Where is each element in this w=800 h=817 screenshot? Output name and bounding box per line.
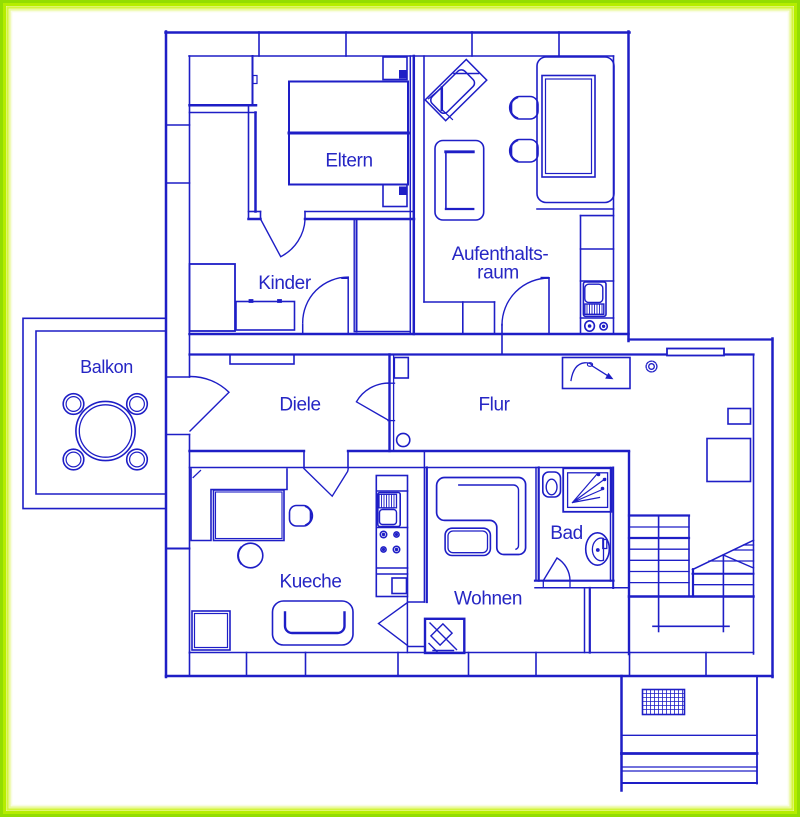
svg-text:Balkon: Balkon [80, 357, 133, 377]
svg-text:Kueche: Kueche [279, 572, 341, 593]
svg-text:Bad: Bad [550, 523, 583, 544]
svg-text:Flur: Flur [478, 395, 510, 416]
svg-text:Eltern: Eltern [325, 151, 372, 172]
svg-text:Diele: Diele [279, 395, 320, 416]
svg-text:Kinder: Kinder [258, 273, 312, 294]
svg-text:Wohnen: Wohnen [454, 589, 522, 610]
svg-text:raum: raum [477, 263, 519, 284]
